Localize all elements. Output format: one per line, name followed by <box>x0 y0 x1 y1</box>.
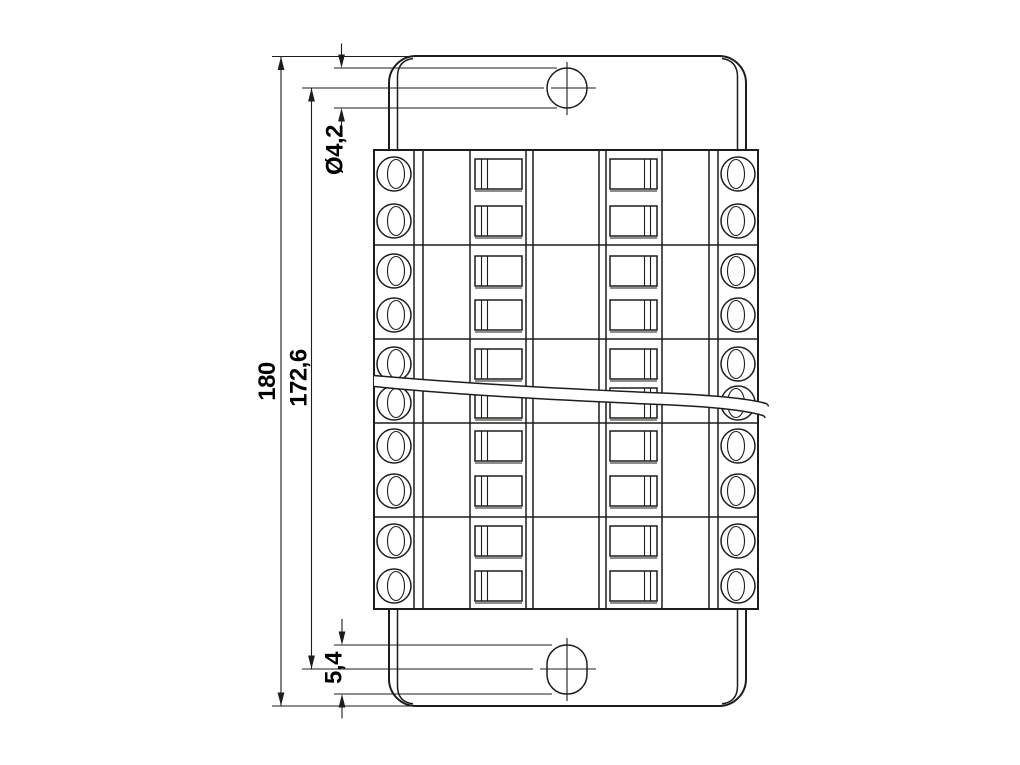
dimension-drawing: 180 172,6 Ø4,2 5,4 <box>0 0 1020 765</box>
arrowhead-down-icon <box>308 656 315 670</box>
dimension-172-6: 172,6 <box>285 88 315 669</box>
arrowhead-up-icon <box>308 88 315 102</box>
arrowhead-up-icon <box>278 57 285 71</box>
arrowhead-down-icon <box>338 55 345 69</box>
dim-label-overall-height: 180 <box>254 362 281 401</box>
dimension-slot-length: 5,4 <box>320 619 347 719</box>
dimension-180: 180 <box>254 57 285 707</box>
arrowhead-up-icon <box>339 694 346 708</box>
dim-label-hole-diameter: Ø4,2 <box>321 125 348 175</box>
arrowhead-up-icon <box>338 108 345 122</box>
arrowhead-down-icon <box>278 693 285 707</box>
dim-label-slot-length: 5,4 <box>320 651 347 684</box>
technical-drawing-canvas: 180 172,6 Ø4,2 5,4 <box>0 0 1020 765</box>
dim-label-hole-spacing: 172,6 <box>285 349 312 407</box>
arrowhead-down-icon <box>339 632 346 646</box>
dimension-hole-diameter: Ø4,2 <box>321 44 348 176</box>
